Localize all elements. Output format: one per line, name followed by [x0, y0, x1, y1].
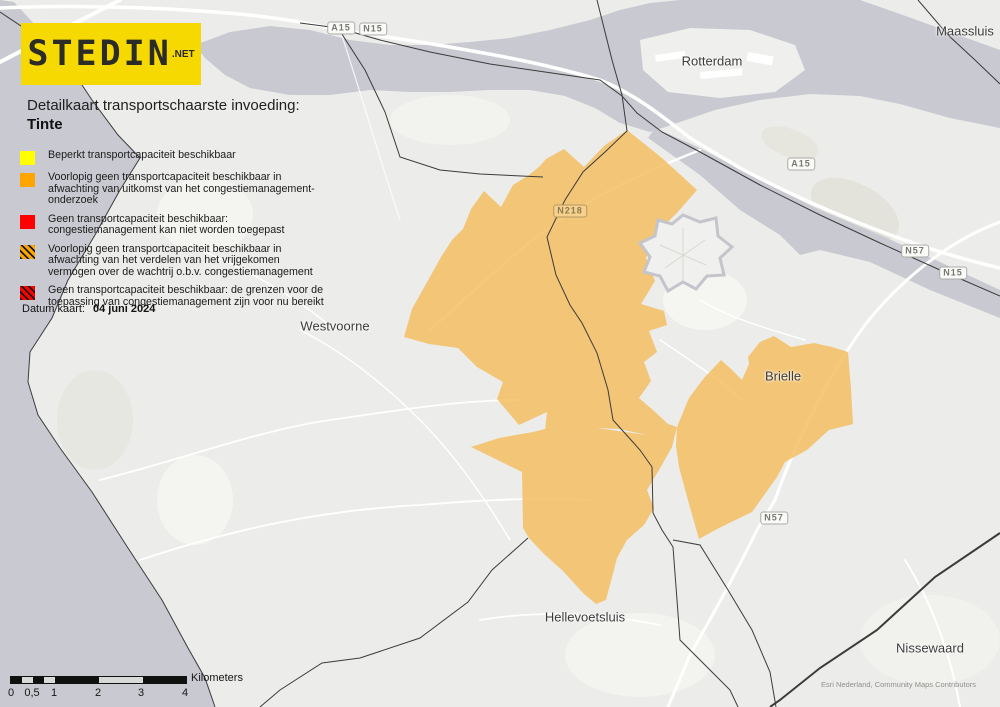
road-shield-n218: N218 — [553, 205, 587, 218]
scalebar-tick: 0,5 — [24, 687, 39, 699]
legend-item-no-capacity-no-congestion-mgmt: Geen transportcapaciteit beschikbaar: co… — [20, 214, 325, 237]
map-date-label: Datum kaart: — [22, 303, 85, 315]
road-shield-n57-south: N57 — [760, 512, 788, 525]
map-date-value: 04 juni 2024 — [93, 303, 155, 315]
road-shield-n57-east: N57 — [901, 245, 929, 258]
map-subtitle: Tinte — [27, 116, 63, 133]
road-shield-n15-top: N15 — [359, 23, 387, 36]
city-label-brielle: Brielle — [765, 369, 801, 384]
city-label-hellevoetsluis: Hellevoetsluis — [545, 610, 625, 625]
scalebar-tick: 4 — [182, 687, 188, 699]
stedin-logo-text: STEDIN — [27, 34, 171, 74]
city-label-maassluis: Maassluis — [936, 24, 994, 39]
road-shield-a15-top: A15 — [327, 22, 355, 35]
city-label-westvoorne: Westvoorne — [300, 319, 369, 334]
legend-label: Voorlopig geen transportcapaciteit besch… — [48, 172, 325, 207]
legend-swatch-orange — [20, 173, 35, 187]
map-attribution: Esri Nederland, Community Maps Contribut… — [821, 680, 976, 689]
map-date: Datum kaart:04 juni 2024 — [22, 303, 155, 315]
legend-label: Voorlopig geen transportcapaciteit besch… — [48, 244, 325, 279]
legend-label: Geen transportcapaciteit beschikbaar: co… — [48, 214, 325, 237]
scalebar-tick: 0 — [8, 687, 14, 699]
legend-swatch-red-hatched — [20, 286, 35, 300]
legend: Beperkt transportcapaciteit beschikbaar … — [20, 150, 325, 315]
scalebar-bar — [10, 676, 187, 684]
scalebar-unit: Kilometers — [191, 672, 243, 684]
stedin-logo-suffix: .NET — [172, 49, 195, 60]
stedin-logo: STEDIN.NET — [21, 23, 201, 85]
legend-swatch-orange-hatched — [20, 245, 35, 259]
legend-label: Beperkt transportcapaciteit beschikbaar — [48, 150, 236, 165]
scalebar-tick: 1 — [51, 687, 57, 699]
legend-swatch-yellow — [20, 151, 35, 165]
road-shield-n15-east: N15 — [939, 267, 967, 280]
scalebar-tick: 2 — [95, 687, 101, 699]
legend-item-limited-capacity: Beperkt transportcapaciteit beschikbaar — [20, 150, 325, 165]
map-canvas[interactable]: A15 N15 A15 N57 N15 N218 N57 Rotterdam M… — [0, 0, 1000, 707]
city-label-rotterdam: Rotterdam — [682, 54, 743, 69]
legend-swatch-red — [20, 215, 35, 229]
road-shield-a15-east: A15 — [787, 158, 815, 171]
scalebar-tick: 3 — [138, 687, 144, 699]
map-title: Detailkaart transportschaarste invoeding… — [27, 97, 300, 114]
legend-item-no-capacity-pending-research: Voorlopig geen transportcapaciteit besch… — [20, 172, 325, 207]
city-label-nissewaard: Nissewaard — [896, 641, 964, 656]
legend-item-no-capacity-pending-redistribution: Voorlopig geen transportcapaciteit besch… — [20, 244, 325, 279]
